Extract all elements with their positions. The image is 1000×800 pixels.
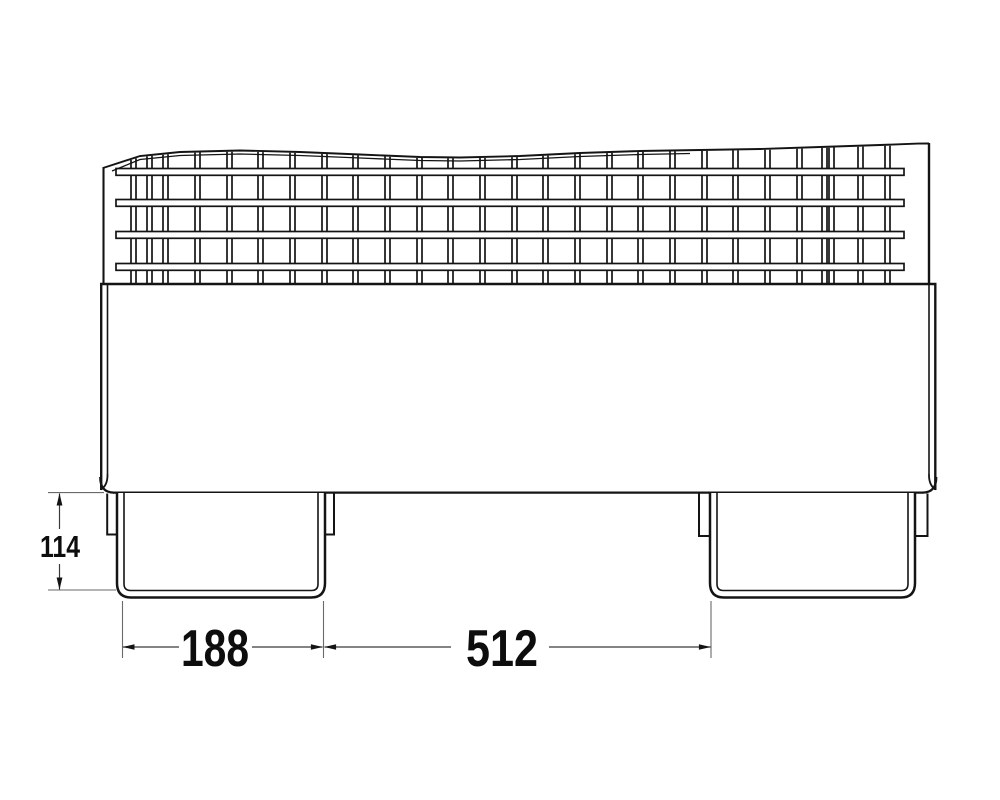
body-panel (100, 284, 937, 493)
left-foot-face (117, 493, 325, 598)
dim-512-arrow-right (699, 644, 711, 650)
dim-188-arrow-right (311, 644, 323, 650)
mesh-horizontal-bar (116, 232, 904, 239)
right-foot-rear-tab-right (916, 494, 928, 537)
mesh-horizontal-bars (116, 169, 904, 271)
dim-114-arrow-up (57, 493, 63, 505)
dimension-feet-gap-512: 512 (324, 601, 711, 678)
body-panel-face (101, 284, 936, 492)
dim-188-label: 188 (181, 620, 249, 678)
mesh-horizontal-bar (116, 200, 904, 207)
dimension-height-114: 114 (40, 493, 116, 590)
mesh-horizontal-bar (116, 264, 904, 271)
dim-512-arrow-left (324, 644, 336, 650)
dimension-foot-width-188: 188 (123, 601, 324, 678)
technical-drawing: 114 188 512 (0, 0, 1000, 800)
mesh-horizontal-bar (116, 169, 904, 176)
right-foot-face (710, 493, 915, 598)
dim-188-arrow-left (123, 644, 135, 650)
right-foot (710, 493, 915, 598)
left-foot (117, 493, 325, 598)
mesh-basket (103, 143, 929, 284)
dim-114-label: 114 (40, 529, 81, 564)
dim-512-label: 512 (466, 620, 538, 678)
dim-114-arrow-down (57, 578, 63, 590)
drawing-canvas: 114 188 512 (0, 0, 1000, 800)
